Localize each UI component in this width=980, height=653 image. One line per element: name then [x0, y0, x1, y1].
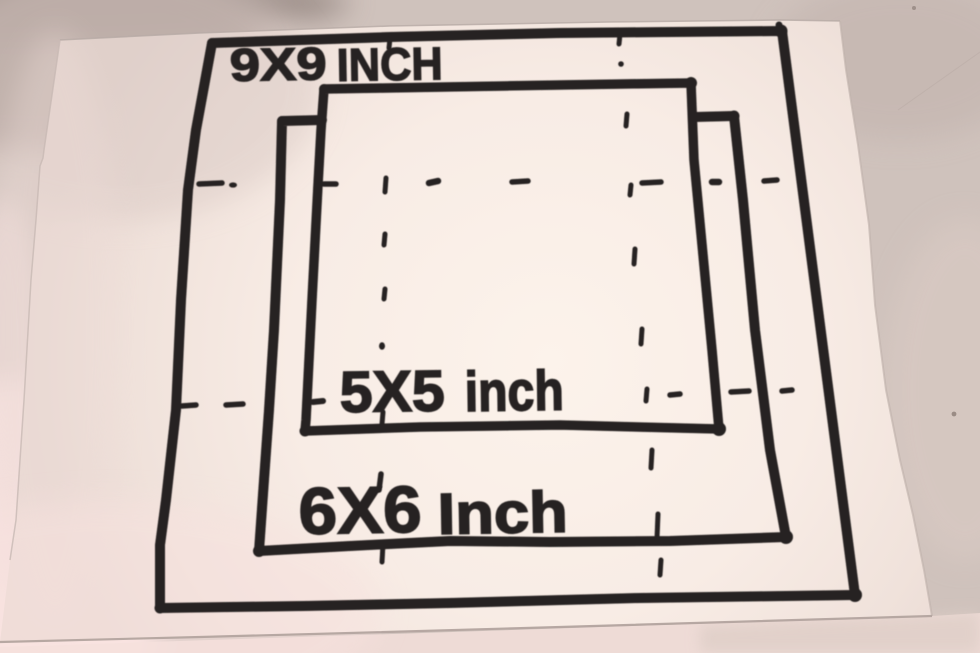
svg-text:inch: inch	[464, 359, 564, 423]
svg-text:9X9: 9X9	[229, 37, 327, 91]
svg-text:5X5: 5X5	[339, 359, 445, 425]
svg-text:Inch: Inch	[437, 480, 568, 547]
svg-text:INCH: INCH	[336, 37, 443, 91]
svg-text:6X6: 6X6	[298, 472, 422, 548]
